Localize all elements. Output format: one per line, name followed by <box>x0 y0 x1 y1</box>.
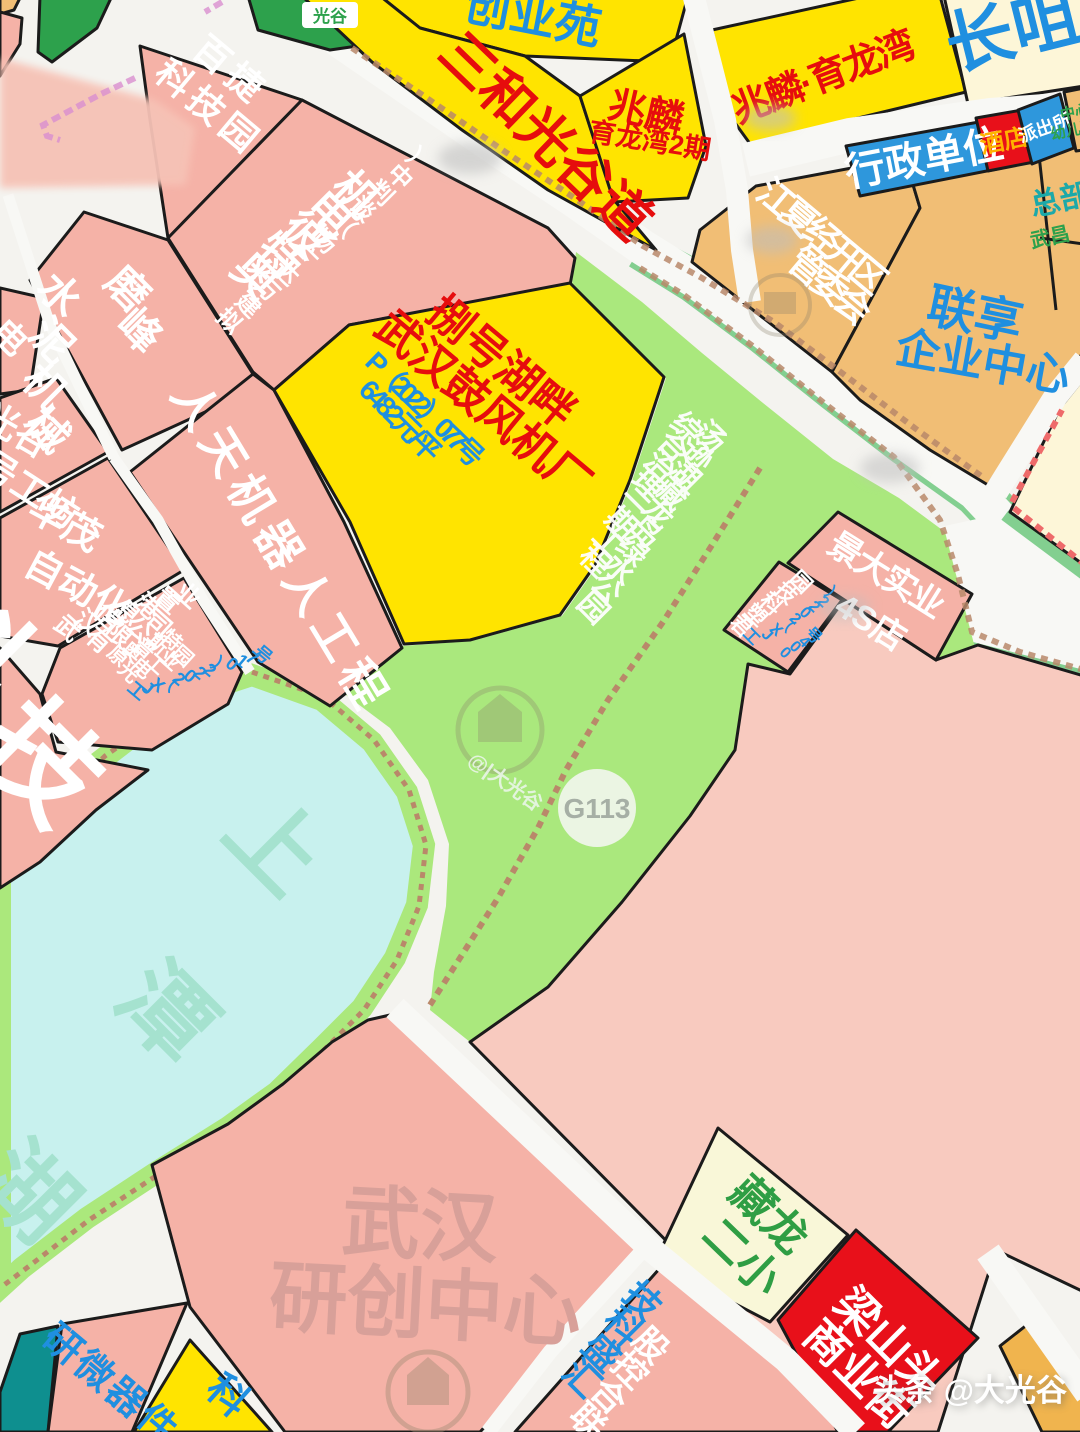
svg-text:光谷: 光谷 <box>312 6 348 26</box>
svg-text:头条 @大光谷: 头条 @大光谷 <box>873 1373 1067 1408</box>
svg-text:研创中心: 研创中心 <box>267 1253 583 1357</box>
svg-text:G113: G113 <box>564 793 631 824</box>
